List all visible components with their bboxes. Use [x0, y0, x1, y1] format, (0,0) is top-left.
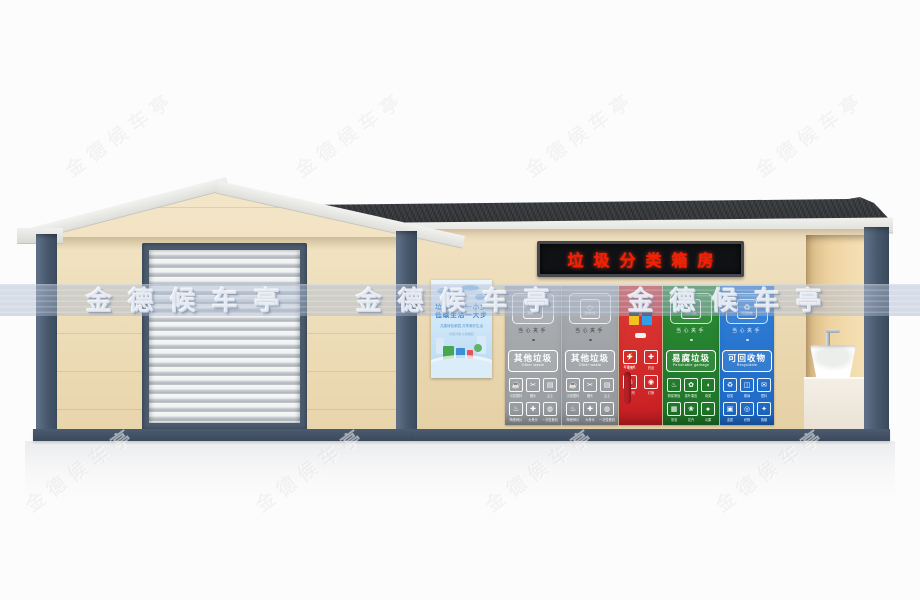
bin-item-icon: ◖ [701, 378, 715, 392]
bin-item: ◍一次性餐具 [544, 402, 557, 422]
hazardous-door-handle [624, 372, 631, 404]
bin-item-icon: ◉ [644, 375, 658, 389]
bin-item-label: 污损塑料 [510, 393, 523, 398]
diagonal-watermark-text: 金德候车亭 [59, 84, 180, 182]
bin-item: ◖肉类 [702, 378, 715, 398]
bin-item-label: 金属 [727, 417, 733, 422]
bin-item-label: 陶瓷碎片 [510, 417, 523, 422]
bin-item-icon: ♨ [566, 402, 580, 416]
bin-item-icon: ♨ [667, 378, 681, 392]
hazardous-mini-label: 有害垃圾 [623, 365, 635, 369]
bin-item-label: 烟头 [587, 393, 593, 398]
bin-item-label: 烟头 [530, 393, 536, 398]
bin-item-icon: ✉ [757, 378, 771, 392]
bin-icon-grid: ☕污损塑料✂烟头▤尘土♨陶瓷碎片✚大骨头◍一次性餐具 [505, 378, 561, 422]
bin-item: ✦瓶罐 [758, 402, 771, 422]
bin-name-cn: 易腐垃圾 [672, 354, 710, 363]
bin-item-icon: ☕ [566, 378, 580, 392]
bin-icon-grid: ♨剩菜剩饭✿菜叶果皮◖肉类▦茶渣❀花卉●瓜果 [663, 378, 719, 422]
bin-item-label: 污损塑料 [567, 393, 580, 398]
bin-item-icon: ◎ [740, 402, 754, 416]
bin-name-sign: 易腐垃圾Perishable garbage [666, 350, 716, 372]
diagonal-watermark-text: 金德候车亭 [289, 84, 410, 182]
bin-item-icon: ▤ [600, 378, 614, 392]
bin-icon-grid: ♻纸类◫玻璃✉塑料▣金属◎织物✦瓶罐 [720, 378, 774, 422]
bin-item-icon: ◍ [543, 402, 557, 416]
poster-tree-shape [474, 344, 482, 352]
bin-item-label: 塑料 [761, 393, 767, 398]
bin-item-label: 一次性餐具 [599, 417, 615, 422]
bin-item: ✿菜叶果皮 [685, 378, 698, 398]
led-display-sign: 垃圾分类箱房 [537, 241, 744, 277]
bin-item: ▤尘土 [601, 378, 614, 398]
bin-item-label: 药品 [648, 365, 654, 370]
bin-item: ◫玻璃 [741, 378, 754, 398]
diagonal-watermark-text: 金德候车亭 [749, 84, 870, 182]
garbage-station-render: 垃圾分类箱房 垃圾分类一小步 低碳生活一大步 共建绿色家园 共享美好生活 垃圾分… [0, 0, 920, 600]
bin-item: ◍一次性餐具 [601, 402, 614, 422]
bin-item-icon: ▦ [667, 402, 681, 416]
bin-item-icon: ◫ [740, 378, 754, 392]
bin-name-sign: 可回收物Recyclable [722, 350, 772, 372]
bin-item-label: 瓶罐 [761, 417, 767, 422]
bin-item-icon: ❀ [684, 402, 698, 416]
caution-label: 当心夹手 [505, 327, 561, 334]
bin-item-icon: ☕ [509, 378, 523, 392]
watermark-text: 金德候车亭 [86, 281, 296, 318]
led-sign-text: 垃圾分类箱房 [557, 247, 723, 271]
bin-item-label: 剩菜剩饭 [668, 393, 681, 398]
bin-item: ✂烟头 [527, 378, 540, 398]
faucet-spout [826, 329, 840, 333]
chute-handle [746, 339, 749, 341]
bin-item-label: 茶渣 [671, 417, 677, 422]
bin-item: ☕污损塑料 [510, 378, 523, 398]
bin-item-icon: ✚ [644, 350, 658, 364]
bin-item-icon: ● [701, 402, 715, 416]
watermark-text: 金德候车亭 [356, 281, 566, 318]
bin-item: ✚药品 [644, 350, 658, 370]
bin-item: ◎织物 [741, 402, 754, 422]
caution-label: 当心夹手 [663, 327, 719, 334]
bin-name-en: Recyclable [737, 363, 758, 368]
bin-item: ♨陶瓷碎片 [510, 402, 523, 422]
chute-handle [532, 339, 535, 341]
roller-door-slats [149, 250, 300, 423]
bin-item-label: 玻璃 [744, 393, 750, 398]
poster-wave-decoration [431, 358, 492, 378]
bin-item-icon: ♨ [509, 402, 523, 416]
bin-item-label: 花卉 [688, 417, 694, 422]
caution-label: 当心夹手 [562, 327, 618, 334]
diagonal-watermark-text: 金德候车亭 [519, 84, 640, 182]
bin-item: ✚大骨头 [527, 402, 540, 422]
bin-item-icon: ✂ [583, 378, 597, 392]
bin-item-label: 瓜果 [705, 417, 711, 422]
bin-item: ✚大骨头 [584, 402, 597, 422]
bin-item-label: 织物 [744, 417, 750, 422]
chute-handle [589, 339, 592, 341]
watermark-text: 金德候车亭 [628, 281, 838, 318]
bin-item: ▤尘土 [544, 378, 557, 398]
bin-item-icon: ✚ [583, 402, 597, 416]
bin-item-icon: ▣ [723, 402, 737, 416]
bin-item-label: 尘土 [547, 393, 553, 398]
chute-handle [690, 339, 693, 341]
bin-item-label: 尘土 [604, 393, 610, 398]
bin-item: ♻纸类 [724, 378, 737, 398]
roller-shutter-door [142, 243, 307, 430]
bin-item-icon: ✂ [526, 378, 540, 392]
bin-icon-grid: ☕污损塑料✂烟头▤尘土♨陶瓷碎片✚大骨头◍一次性餐具 [562, 378, 618, 422]
bin-name-en: Perishable garbage [673, 363, 710, 368]
bin-item-label: 纸类 [727, 393, 733, 398]
watermark-band: 金德候车亭 金德候车亭 金德候车亭 [0, 284, 920, 316]
bin-item: ✂烟头 [584, 378, 597, 398]
bin-item: ♨剩菜剩饭 [668, 378, 681, 398]
bin-item-icon: ✚ [526, 402, 540, 416]
deposit-slot [635, 333, 646, 338]
bin-item-label: 肉类 [705, 393, 711, 398]
bin-item: ❀花卉 [685, 402, 698, 422]
bin-item: ▦茶渣 [668, 402, 681, 422]
bin-item-icon: ✦ [757, 402, 771, 416]
bin-item-label: 菜叶果皮 [685, 393, 698, 398]
bin-name-cn: 其他垃圾 [571, 354, 609, 363]
bin-item-icon: ♻ [723, 378, 737, 392]
hazardous-cross-icon: ✚ [623, 350, 637, 364]
bin-item-icon: ✿ [684, 378, 698, 392]
bin-item: ✉塑料 [758, 378, 771, 398]
poster-subtitle: 共建绿色家园 共享美好生活 [431, 324, 492, 329]
bin-item: ☕污损塑料 [567, 378, 580, 398]
bin-name-cn: 其他垃圾 [514, 354, 552, 363]
bin-item-label: 陶瓷碎片 [567, 417, 580, 422]
bin-item-label: 灯管 [648, 390, 654, 395]
bin-name-cn: 可回收物 [728, 354, 766, 363]
bin-item-icon: ▤ [543, 378, 557, 392]
bin-name-sign: 其他垃圾Other waste [508, 350, 558, 372]
bin-item: ▣金属 [724, 402, 737, 422]
wash-basin [810, 345, 856, 378]
bin-name-sign: 其他垃圾Other waste [565, 350, 615, 372]
bin-item: ●瓜果 [702, 402, 715, 422]
junction-pilaster [396, 231, 417, 439]
bin-item: ◉灯管 [644, 375, 658, 395]
right-corner-pilaster [864, 227, 889, 440]
bin-item-icon: ◍ [600, 402, 614, 416]
bin-name-en: Other waste [522, 363, 545, 368]
left-corner-column [36, 234, 57, 439]
bin-item-label: 大骨头 [528, 417, 538, 422]
caution-label: 当心夹手 [720, 327, 774, 334]
bin-item-label: 一次性餐具 [542, 417, 558, 422]
hazardous-mini-sign: ✚有害垃圾 [622, 350, 637, 369]
bin-name-en: Other waste [579, 363, 602, 368]
bin-item: ♨陶瓷碎片 [567, 402, 580, 422]
